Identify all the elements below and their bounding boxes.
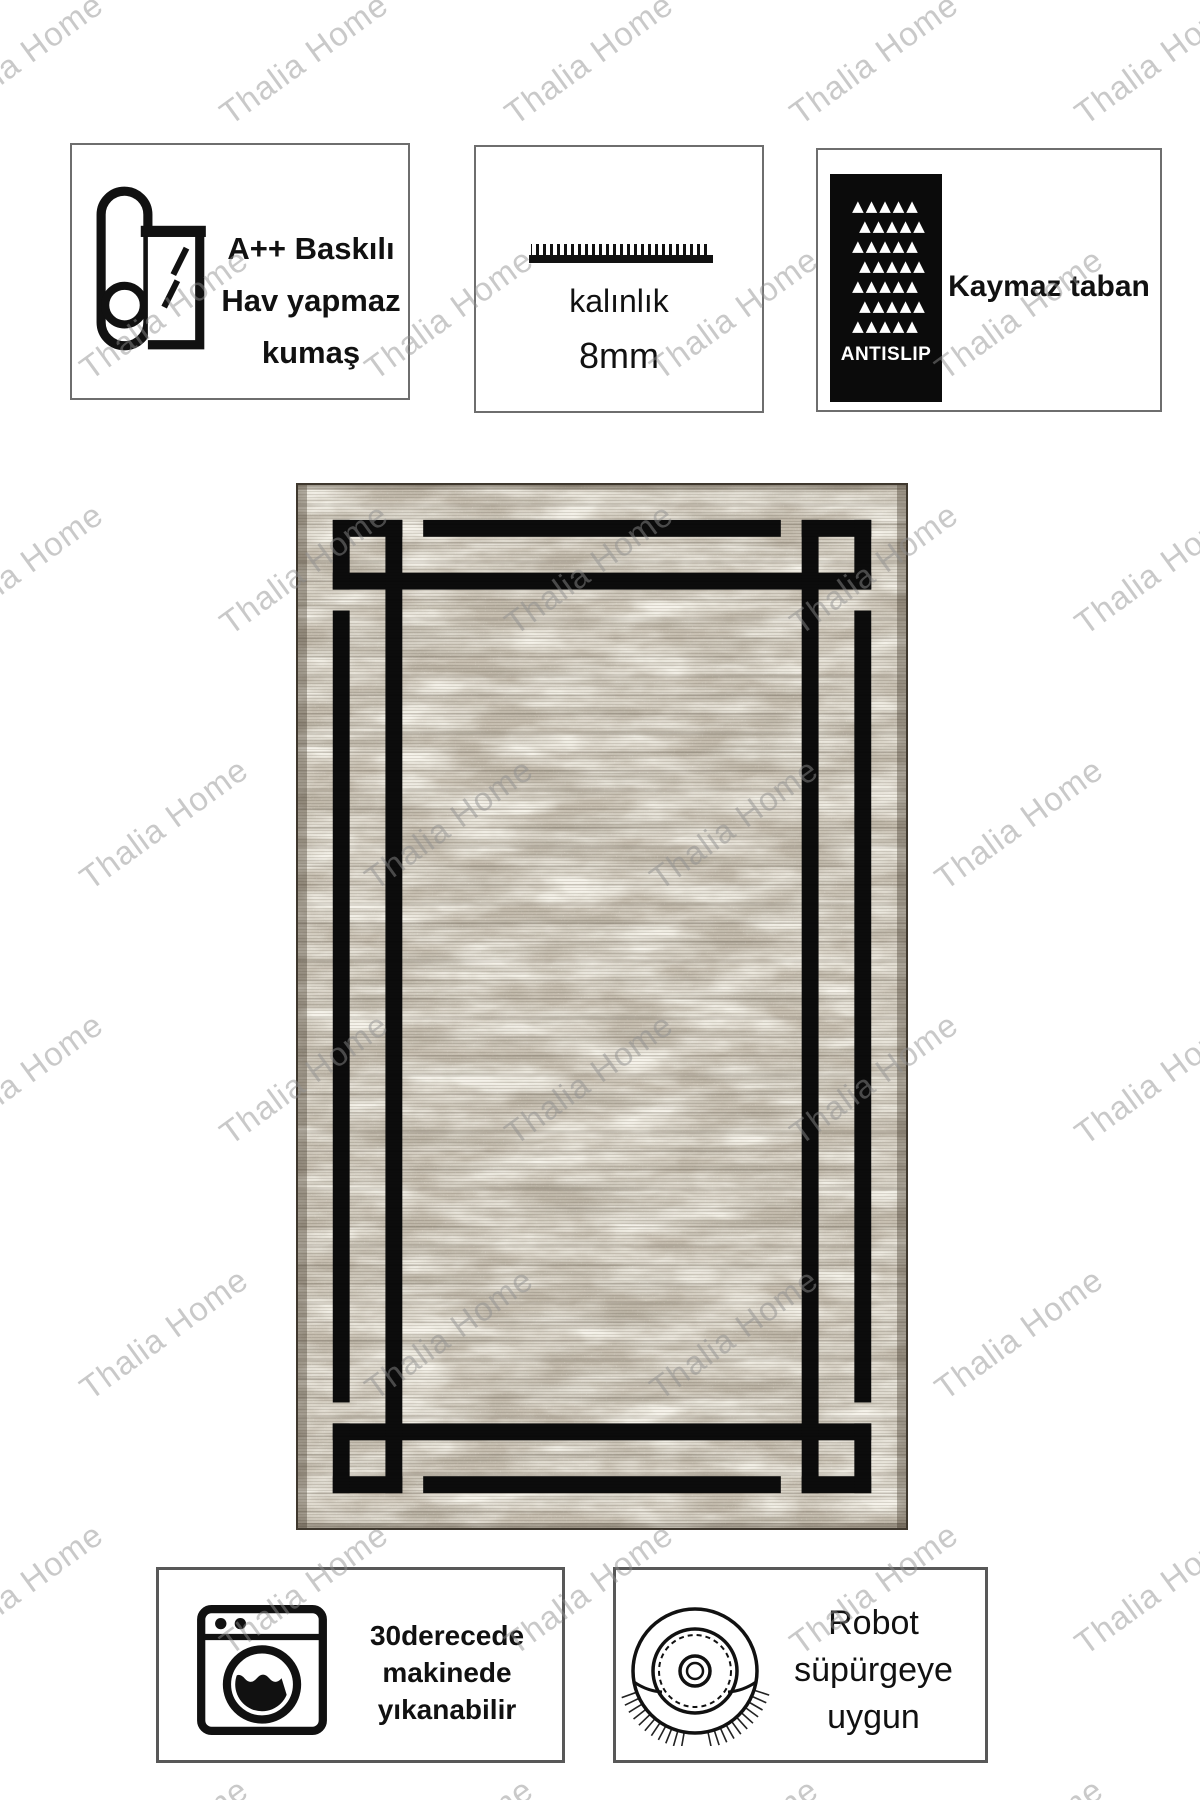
badge-robot-vacuum-safe: Robot süpürgeye uygun [613, 1567, 988, 1763]
watermark-text: Thalia Home [498, 0, 681, 133]
fabric-line-3: kumaş [220, 327, 402, 379]
rug-pattern [298, 485, 906, 1528]
thickness-ruler-icon [529, 244, 713, 264]
thickness-label: kalınlık [476, 283, 762, 320]
washing-line-1: 30derecede [341, 1617, 553, 1654]
watermark-text: Thalia Home [0, 1005, 110, 1152]
washing-line-3: yıkanabilir [341, 1691, 553, 1728]
watermark-text: Thalia Home [928, 1770, 1111, 1800]
robot-line-2: süpürgeye [768, 1647, 979, 1694]
watermark-text: Thalia Home [73, 1260, 256, 1407]
watermark-text: Thalia Home [358, 1770, 541, 1800]
watermark-text: Thalia Home [643, 1770, 826, 1800]
watermark-text: Thalia Home [1068, 1005, 1200, 1152]
badge-fabric-quality: A++ Baskılı Hav yapmaz kumaş [70, 143, 410, 400]
antislip-tag: ANTISLIP [841, 344, 932, 366]
antislip-triangle-row: ▲▲▲▲▲ [852, 316, 920, 336]
product-image: A++ Baskılı Hav yapmaz kumaş kalınlık 8m… [0, 0, 1200, 1800]
robot-line-1: Robot [768, 1600, 979, 1647]
watermark-text: Thalia Home [0, 495, 110, 642]
watermark-text: Thalia Home [1068, 0, 1200, 133]
washing-machine-icon [195, 1603, 329, 1737]
fabric-line-1: A++ Baskılı [220, 223, 402, 275]
watermark-text: Thalia Home [928, 1260, 1111, 1407]
watermark-text: Thalia Home [783, 0, 966, 133]
badge-thickness: kalınlık 8mm [474, 145, 764, 413]
watermark-text: Thalia Home [1068, 1515, 1200, 1662]
watermark-text: Thalia Home [73, 750, 256, 897]
watermark-text: Thalia Home [0, 1515, 110, 1662]
antislip-triangle-row: ▲▲▲▲▲ [859, 296, 927, 316]
antislip-triangle-row: ▲▲▲▲▲ [852, 196, 920, 216]
rug-image [296, 483, 908, 1530]
antislip-triangle-row: ▲▲▲▲▲ [859, 216, 927, 236]
watermark-text: Thalia Home [0, 0, 110, 133]
badge-machine-washable: 30derecede makinede yıkanabilir [156, 1567, 565, 1763]
robot-vacuum-text: Robot süpürgeye uygun [768, 1600, 979, 1741]
antislip-triangle-row: ▲▲▲▲▲ [859, 256, 927, 276]
washing-line-2: makinede [341, 1654, 553, 1691]
watermark-text: Thalia Home [73, 1770, 256, 1800]
robot-line-3: uygun [768, 1694, 979, 1741]
fabric-roll-icon [94, 185, 216, 353]
antislip-label: Kaymaz taban [942, 270, 1156, 304]
machine-washable-text: 30derecede makinede yıkanabilir [341, 1617, 553, 1728]
antislip-triangles-icon: ▲▲▲▲▲▲▲▲▲▲▲▲▲▲▲▲▲▲▲▲▲▲▲▲▲▲▲▲▲▲▲▲▲▲▲ANTIS… [830, 174, 942, 402]
fabric-line-2: Hav yapmaz [220, 275, 402, 327]
watermark-text: Thalia Home [928, 750, 1111, 897]
antislip-triangle-row: ▲▲▲▲▲ [852, 236, 920, 256]
badge-antislip: ▲▲▲▲▲▲▲▲▲▲▲▲▲▲▲▲▲▲▲▲▲▲▲▲▲▲▲▲▲▲▲▲▲▲▲ANTIS… [816, 148, 1162, 412]
thickness-value: 8mm [476, 335, 762, 377]
robot-vacuum-icon [620, 1596, 770, 1746]
watermark-text: Thalia Home [1068, 495, 1200, 642]
fabric-quality-text: A++ Baskılı Hav yapmaz kumaş [220, 223, 402, 379]
watermark-text: Thalia Home [213, 0, 396, 133]
antislip-triangle-row: ▲▲▲▲▲ [852, 276, 920, 296]
